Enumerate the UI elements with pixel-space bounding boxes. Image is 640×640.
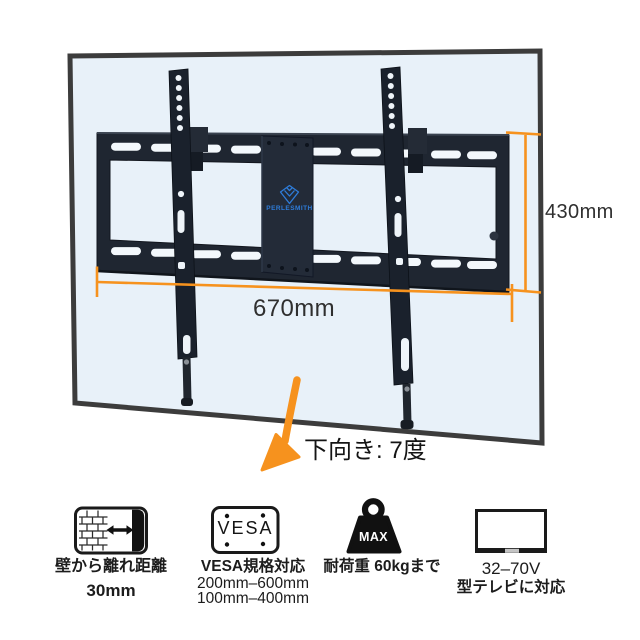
brand-logo-text: PERLESMITH <box>254 206 325 213</box>
tv-screen-icon <box>477 511 546 553</box>
feature-tv-size-value: 32–70V <box>446 560 576 578</box>
brick-wall-tv-gap-icon <box>76 508 147 553</box>
tilt-screw <box>404 386 409 391</box>
weight-icon <box>349 501 400 551</box>
vesa-icon-label: VESA <box>213 519 278 538</box>
tv-stand-mark <box>505 549 519 553</box>
feature-vesa-caption: VESA規格対応 <box>188 559 318 575</box>
max-icon-label: MAX <box>355 531 392 544</box>
feature-vesa-range-2: 100mm–400mm <box>188 591 318 607</box>
tilt-screw <box>184 359 189 364</box>
feature-max-load-caption: 耐荷重 60kgまで <box>312 559 452 575</box>
width-dimension-label: 670mm <box>228 296 360 321</box>
brick-pattern <box>79 511 108 551</box>
frame-knob <box>490 232 499 241</box>
tilt-angle-label: 下向き: 7度 <box>304 438 427 463</box>
feature-wall-distance-value: 30mm <box>46 582 176 600</box>
tv-side-profile <box>132 510 144 551</box>
product-hero-image: 430mm 670mm 下向き: 7度 PERLESMITH VESA MAX … <box>0 0 640 640</box>
height-dimension-label: 430mm <box>545 202 614 223</box>
feature-tv-size-caption: 型テレビに対応 <box>446 580 576 596</box>
feature-wall-distance-caption: 壁から離れ距離 <box>46 559 176 576</box>
right-bracket-hook <box>408 128 427 154</box>
